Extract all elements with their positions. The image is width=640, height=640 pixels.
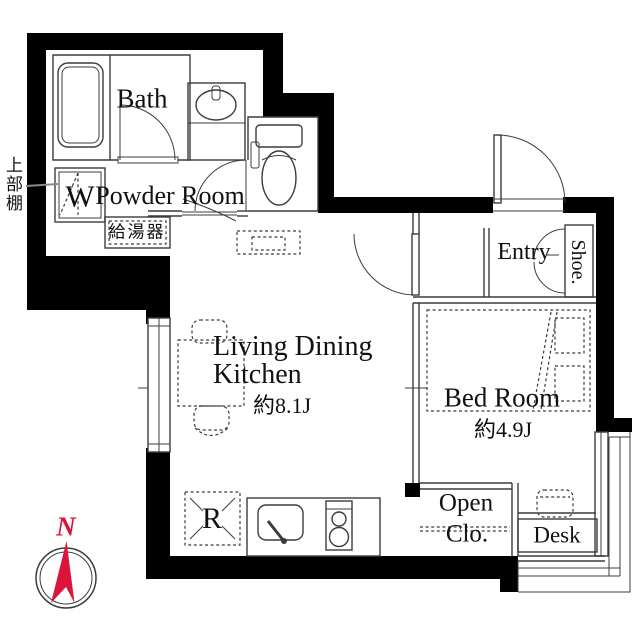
shoe-cabinet-label: Shoe. bbox=[568, 240, 588, 285]
ldk-area-label: 約8.1J bbox=[253, 395, 311, 417]
open-closet-label-line2: Clo. bbox=[446, 522, 488, 547]
kitchen-sink bbox=[258, 505, 303, 544]
ldk-door bbox=[354, 234, 419, 295]
bedroom-area-label: 約4.9J bbox=[474, 419, 532, 441]
entry-door bbox=[493, 135, 565, 211]
bath-label: Bath bbox=[117, 86, 168, 113]
bedroom-north-wall bbox=[413, 297, 596, 303]
open-closet-label-line1: Open bbox=[439, 491, 493, 516]
hall-wall bbox=[413, 213, 419, 234]
ldk-label-line2: Kitchen bbox=[213, 361, 302, 389]
upper-shelf-label: 上部棚 bbox=[4, 156, 21, 213]
powder-room-wall bbox=[148, 211, 248, 216]
compass-icon bbox=[36, 541, 96, 608]
balcony bbox=[518, 432, 630, 592]
compass-north-label: N bbox=[56, 514, 76, 541]
air-conditioner bbox=[237, 231, 300, 254]
powder-room-label: Powder Room bbox=[95, 183, 245, 209]
ldk-west-window bbox=[138, 318, 170, 452]
washing-machine-label: W bbox=[65, 181, 94, 212]
bedroom-label: Bed Room bbox=[444, 385, 560, 412]
bathtub bbox=[58, 63, 103, 147]
bedroom-south-window bbox=[518, 556, 605, 561]
kitchen-counter bbox=[247, 498, 380, 556]
refrigerator-label: R bbox=[202, 504, 222, 534]
dining-chair-bottom bbox=[194, 406, 229, 436]
vanity-sink bbox=[188, 83, 245, 160]
entry-label: Entry bbox=[497, 240, 550, 264]
desk-label: Desk bbox=[533, 524, 580, 547]
ldk-bedroom-partition bbox=[405, 303, 427, 483]
water-heater-label: 給湯器 bbox=[109, 224, 166, 241]
stove bbox=[326, 501, 352, 550]
ldk-label-line1: Living Dining bbox=[213, 333, 372, 361]
exterior-walls bbox=[27, 33, 632, 592]
toilet bbox=[251, 125, 302, 205]
floor-plan: Bath Powder Room W 上部棚 給湯器 Living Dining… bbox=[0, 0, 640, 640]
